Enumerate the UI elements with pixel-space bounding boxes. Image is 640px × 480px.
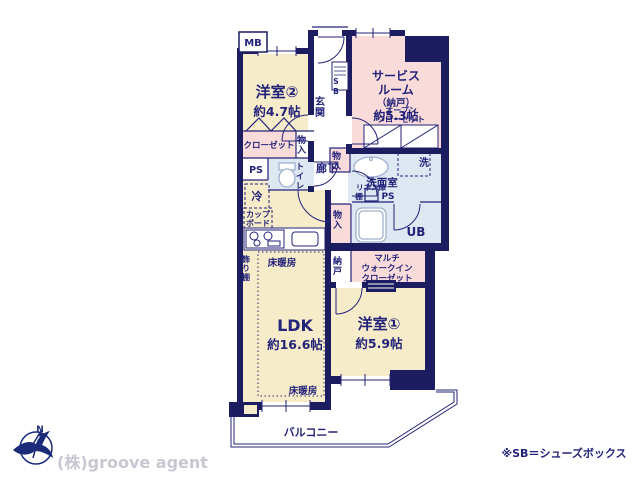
toilet-bowl bbox=[279, 169, 295, 187]
label-shelf: 棚 bbox=[355, 191, 363, 201]
balcony-hatch-inner bbox=[244, 405, 257, 414]
label-open-closet-1: オープン bbox=[385, 105, 417, 115]
label-western2: 洋室② bbox=[256, 83, 299, 101]
floor-plan-page: MB 洋室② 約4.7帖 玄関 SB サービス ルーム （納戸） 約5.3帖 オ… bbox=[0, 0, 640, 480]
label-service-2: ルーム bbox=[378, 83, 414, 97]
label-cupboard-1: カップ bbox=[246, 209, 271, 219]
label-ldk-size: 約16.6帖 bbox=[267, 337, 323, 352]
label-toilet: トイレ bbox=[294, 162, 304, 191]
company-name: (株)groove agent bbox=[57, 453, 208, 472]
burner bbox=[250, 232, 258, 240]
label-display-shelf: 飾り棚 bbox=[242, 254, 251, 282]
label-western1-size: 約5.9帖 bbox=[355, 336, 403, 351]
label-washer: 洗 bbox=[419, 156, 429, 169]
label-wic-1: マルチ bbox=[374, 254, 400, 264]
kitchen-counter bbox=[244, 228, 325, 250]
bathtub-inner bbox=[359, 211, 383, 239]
label-wic-3: クローゼット bbox=[361, 273, 412, 284]
burner bbox=[264, 232, 272, 240]
label-mb: MB bbox=[244, 38, 262, 49]
compass-n: N bbox=[36, 425, 44, 435]
label-linen: リネン庫 bbox=[356, 182, 386, 192]
label-storage-c: 物入 bbox=[331, 209, 343, 230]
label-wic-2: ウォークイン bbox=[361, 263, 413, 274]
label-open-closet-2: クローゼット bbox=[377, 114, 425, 124]
label-ldk: LDK bbox=[277, 316, 313, 335]
shoebox-note: ※SB＝シューズボックス bbox=[501, 446, 626, 460]
floor-plan-drawing: MB 洋室② 約4.7帖 玄関 SB サービス ルーム （納戸） 約5.3帖 オ… bbox=[0, 0, 640, 480]
kitchen-sink bbox=[292, 232, 318, 246]
label-floor-heating-2: 床暖房 bbox=[289, 385, 318, 397]
label-ub: UB bbox=[407, 225, 426, 239]
compass-logo: N bbox=[13, 425, 53, 464]
label-entrance: 玄関 bbox=[313, 95, 325, 118]
label-service-1: サービス bbox=[372, 68, 420, 83]
label-nando: 納戸 bbox=[331, 255, 342, 276]
label-floor-heating-1: 床暖房 bbox=[268, 257, 297, 269]
label-western2-size: 約4.7帖 bbox=[253, 104, 301, 119]
label-ps-b: PS bbox=[381, 192, 394, 202]
label-ps-a: PS bbox=[249, 165, 263, 176]
burner bbox=[254, 240, 260, 246]
label-western1: 洋室① bbox=[358, 315, 401, 333]
label-shoe-box: SB bbox=[332, 77, 341, 97]
grill bbox=[268, 241, 280, 246]
label-storage-b: 物入 bbox=[330, 150, 342, 171]
open-closet-hatch bbox=[364, 125, 438, 148]
bird-silhouette bbox=[13, 431, 53, 458]
label-closet: クローゼット bbox=[243, 140, 294, 151]
label-cupboard-2: ボード bbox=[246, 218, 270, 228]
vanity-tap bbox=[370, 158, 373, 161]
label-balcony: バルコニー bbox=[284, 426, 339, 439]
label-storage-a: 物入 bbox=[295, 134, 307, 155]
label-fridge: 冷 bbox=[252, 189, 263, 203]
